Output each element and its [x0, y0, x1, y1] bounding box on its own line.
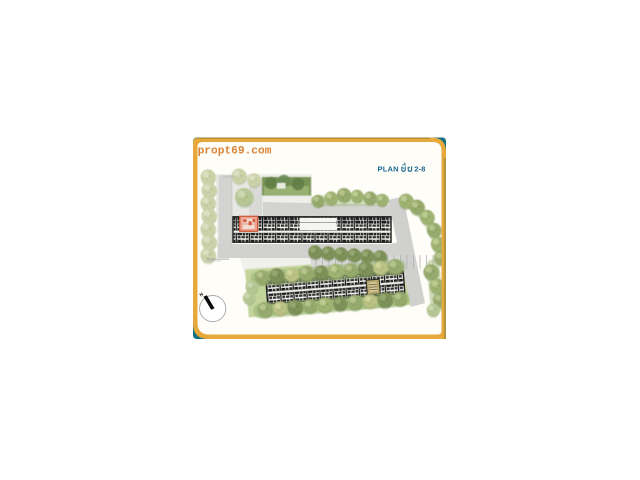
svg-text:PLAN: PLAN — [378, 165, 399, 174]
svg-text:propt69.com: propt69.com — [198, 146, 272, 158]
svg-text:2-8: 2-8 — [414, 165, 425, 174]
